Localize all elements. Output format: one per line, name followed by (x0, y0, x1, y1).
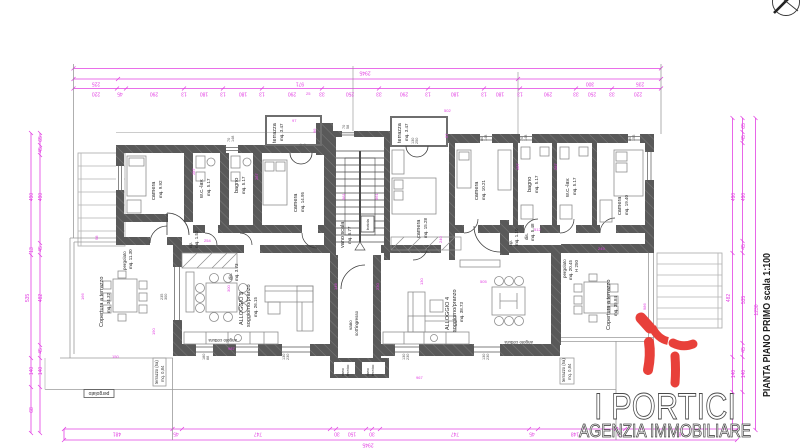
svg-text:45: 45 (38, 147, 44, 153)
svg-text:camera: camera (416, 219, 422, 238)
svg-text:mq. 26.15: mq. 26.15 (253, 296, 258, 317)
svg-text:terrazza: terrazza (397, 122, 403, 143)
svg-text:mq. 14.95: mq. 14.95 (300, 191, 305, 212)
svg-text:512: 512 (534, 227, 541, 232)
svg-text:130: 130 (419, 278, 424, 285)
svg-text:180: 180 (496, 91, 505, 97)
svg-text:mq. 10.21: mq. 10.21 (481, 179, 486, 200)
svg-text:terrazzo (5a): terrazzo (5a) (154, 360, 159, 384)
svg-text:166: 166 (80, 293, 85, 300)
svg-text:967: 967 (416, 375, 423, 380)
svg-text:mq. 34.32: mq. 34.32 (106, 292, 111, 313)
svg-text:terrazzo (5a): terrazzo (5a) (561, 358, 566, 382)
svg-text:45: 45 (741, 347, 747, 353)
svg-text:230: 230 (486, 354, 490, 360)
svg-text:747: 747 (451, 431, 460, 437)
svg-text:mq. 3.73: mq. 3.73 (234, 263, 239, 281)
svg-text:botola: botola (365, 218, 370, 230)
svg-text:148: 148 (571, 431, 580, 437)
svg-text:58: 58 (346, 125, 350, 129)
svg-text:490: 490 (741, 193, 747, 202)
svg-text:140: 140 (741, 370, 747, 379)
svg-text:287: 287 (254, 173, 259, 180)
svg-text:148: 148 (231, 136, 235, 142)
svg-text:soggiorno/pranzo: soggiorno/pranzo (452, 289, 458, 332)
svg-text:140: 140 (29, 367, 35, 376)
svg-text:mq. 0,84: mq. 0,84 (567, 363, 572, 380)
svg-text:pergolato: pergolato (562, 259, 567, 278)
svg-text:490: 490 (731, 193, 737, 202)
svg-text:68: 68 (29, 407, 35, 413)
svg-text:13: 13 (481, 91, 487, 97)
svg-text:mq. 38.73: mq. 38.73 (459, 301, 464, 322)
svg-text:mq. 5.17: mq. 5.17 (241, 176, 246, 194)
svg-text:33: 33 (573, 91, 579, 97)
svg-text:vano: vano (366, 368, 370, 376)
svg-text:747: 747 (254, 431, 263, 437)
svg-text:235: 235 (636, 81, 645, 87)
svg-text:482: 482 (726, 294, 732, 303)
svg-text:angolo cottura: angolo cottura (208, 338, 237, 343)
svg-text:mq. 3.47: mq. 3.47 (404, 123, 409, 141)
svg-text:w.c.-lav.: w.c.-lav. (565, 177, 571, 198)
svg-text:961: 961 (374, 193, 379, 200)
svg-text:mq. 20.45: mq. 20.45 (568, 259, 573, 280)
svg-text:250: 250 (415, 138, 419, 144)
svg-text:dis.: dis. (524, 233, 529, 240)
svg-text:300: 300 (226, 285, 231, 292)
svg-text:490: 490 (38, 193, 44, 202)
svg-text:vano: vano (341, 368, 345, 376)
svg-text:13: 13 (425, 91, 431, 97)
svg-text:220: 220 (92, 91, 101, 97)
svg-text:dis.: dis. (228, 273, 233, 280)
svg-text:mq. 0,84: mq. 0,84 (160, 365, 165, 382)
svg-text:camera: camera (474, 181, 480, 200)
svg-text:535: 535 (25, 294, 31, 303)
svg-text:w.c.-lav.: w.c.-lav. (199, 178, 205, 199)
svg-text:1230: 1230 (754, 304, 760, 315)
svg-text:45: 45 (529, 431, 535, 437)
svg-text:97: 97 (444, 133, 449, 138)
svg-text:45: 45 (38, 246, 44, 252)
svg-text:mq. 35.84: mq. 35.84 (613, 295, 618, 316)
svg-text:camera: camera (617, 196, 623, 215)
svg-text:290: 290 (400, 91, 409, 97)
svg-text:971: 971 (296, 81, 305, 87)
svg-text:Copertura a terrazzo: Copertura a terrazzo (606, 280, 612, 330)
svg-text:290: 290 (150, 91, 159, 97)
svg-text:ALLOGGIO 3: ALLOGGIO 3 (239, 292, 245, 325)
svg-text:camera: camera (151, 181, 157, 200)
svg-text:mq. 1.10: mq. 1.10 (514, 228, 519, 246)
svg-text:230: 230 (375, 283, 380, 290)
svg-text:45: 45 (741, 244, 747, 250)
svg-text:535: 535 (741, 296, 747, 305)
svg-text:287: 287 (191, 168, 196, 175)
svg-text:33: 33 (609, 91, 615, 97)
svg-text:140: 140 (731, 370, 737, 379)
svg-text:230: 230 (406, 354, 410, 360)
svg-text:camera: camera (293, 193, 299, 212)
svg-text:300: 300 (164, 294, 168, 300)
svg-text:AGENZIA IMMOBILIARE: AGENZIA IMMOBILIARE (579, 420, 751, 441)
svg-text:150: 150 (112, 354, 119, 359)
svg-text:PIANTA PIANO PRIMO scala 1:100: PIANTA PIANO PRIMO scala 1:100 (761, 253, 773, 397)
svg-text:soggiorno/pranzo: soggiorno/pranzo (246, 284, 252, 327)
svg-text:45: 45 (117, 91, 123, 97)
svg-text:33: 33 (376, 91, 382, 97)
svg-text:97: 97 (292, 118, 297, 123)
svg-text:30: 30 (334, 431, 340, 437)
svg-text:vano scala: vano scala (340, 221, 346, 248)
svg-text:287: 287 (553, 163, 558, 170)
svg-text:180: 180 (200, 91, 209, 97)
svg-text:pergolato: pergolato (122, 251, 127, 270)
svg-text:tecnico: tecnico (346, 365, 350, 376)
svg-text:146: 146 (333, 283, 338, 290)
svg-text:245: 245 (598, 246, 605, 251)
svg-text:148: 148 (484, 135, 488, 141)
svg-text:481: 481 (113, 431, 122, 437)
svg-text:13: 13 (259, 91, 265, 97)
svg-text:sott'ingresso: sott'ingresso (354, 310, 359, 336)
svg-text:45: 45 (38, 348, 44, 354)
svg-text:240: 240 (438, 236, 443, 243)
svg-text:mq. 11.30: mq. 11.30 (128, 249, 133, 269)
svg-text:65: 65 (741, 123, 747, 129)
svg-text:tecnico: tecnico (371, 365, 375, 376)
svg-text:150: 150 (348, 431, 357, 437)
svg-text:155: 155 (632, 135, 636, 141)
svg-text:140: 140 (38, 367, 44, 376)
svg-text:bagno: bagno (234, 178, 240, 193)
svg-text:13: 13 (517, 91, 523, 97)
svg-text:190: 190 (151, 328, 156, 335)
svg-text:ALLOGGIO 4: ALLOGGIO 4 (445, 297, 451, 330)
svg-text:terrazza: terrazza (272, 122, 278, 143)
svg-text:148: 148 (524, 135, 528, 141)
svg-text:13: 13 (29, 247, 35, 253)
svg-text:45: 45 (741, 135, 747, 141)
svg-text:180: 180 (239, 91, 248, 97)
svg-text:H 250: H 250 (574, 259, 579, 272)
svg-text:angolo cottura: angolo cottura (504, 340, 533, 345)
svg-text:490: 490 (29, 193, 35, 202)
svg-text:pergolato: pergolato (88, 390, 109, 396)
svg-text:rip.: rip. (508, 240, 513, 246)
svg-text:vano: vano (348, 320, 353, 330)
svg-text:33: 33 (319, 91, 325, 97)
svg-text:mq. 5.17: mq. 5.17 (534, 175, 539, 193)
svg-text:300: 300 (586, 81, 595, 87)
svg-text:mq. 9.92: mq. 9.92 (158, 180, 163, 198)
svg-text:505: 505 (480, 279, 487, 284)
svg-text:mq. 19.40: mq. 19.40 (624, 194, 629, 215)
svg-text:254: 254 (204, 238, 211, 243)
svg-text:mq. 5.17: mq. 5.17 (206, 178, 211, 196)
svg-text:290: 290 (288, 91, 297, 97)
svg-text:mq. 1.52: mq. 1.52 (194, 230, 199, 248)
svg-text:2945: 2945 (362, 442, 373, 448)
svg-text:88: 88 (206, 356, 210, 360)
svg-text:mq. 3.47: mq. 3.47 (279, 123, 284, 141)
svg-text:961: 961 (341, 193, 346, 200)
svg-text:45: 45 (173, 431, 179, 437)
svg-text:250: 250 (346, 91, 355, 97)
svg-text:502: 502 (444, 108, 451, 113)
svg-text:mq. 15.28: mq. 15.28 (423, 217, 428, 238)
svg-text:30: 30 (369, 431, 375, 437)
svg-text:225: 225 (92, 81, 101, 87)
svg-text:287: 287 (515, 163, 520, 170)
svg-text:25: 25 (306, 91, 311, 96)
svg-text:482: 482 (38, 294, 44, 303)
svg-text:98: 98 (94, 235, 99, 240)
svg-text:Copertura a terrazzo: Copertura a terrazzo (99, 277, 105, 327)
svg-text:96: 96 (312, 128, 317, 133)
svg-text:220: 220 (634, 91, 643, 97)
svg-text:250: 250 (588, 91, 597, 97)
svg-text:rip.: rip. (188, 242, 193, 248)
svg-text:13: 13 (220, 91, 226, 97)
svg-text:65: 65 (38, 136, 44, 142)
svg-text:250: 250 (303, 144, 307, 150)
svg-text:987: 987 (228, 346, 235, 351)
svg-text:986: 986 (642, 303, 647, 310)
svg-text:290: 290 (544, 91, 553, 97)
svg-text:bagno: bagno (527, 177, 533, 192)
svg-text:mq. 5.17: mq. 5.17 (572, 177, 577, 195)
svg-text:2945: 2945 (359, 70, 370, 76)
svg-text:180: 180 (451, 91, 460, 97)
svg-text:13: 13 (181, 91, 187, 97)
svg-text:mq. 6.77: mq. 6.77 (347, 226, 352, 244)
svg-text:230: 230 (286, 354, 290, 360)
